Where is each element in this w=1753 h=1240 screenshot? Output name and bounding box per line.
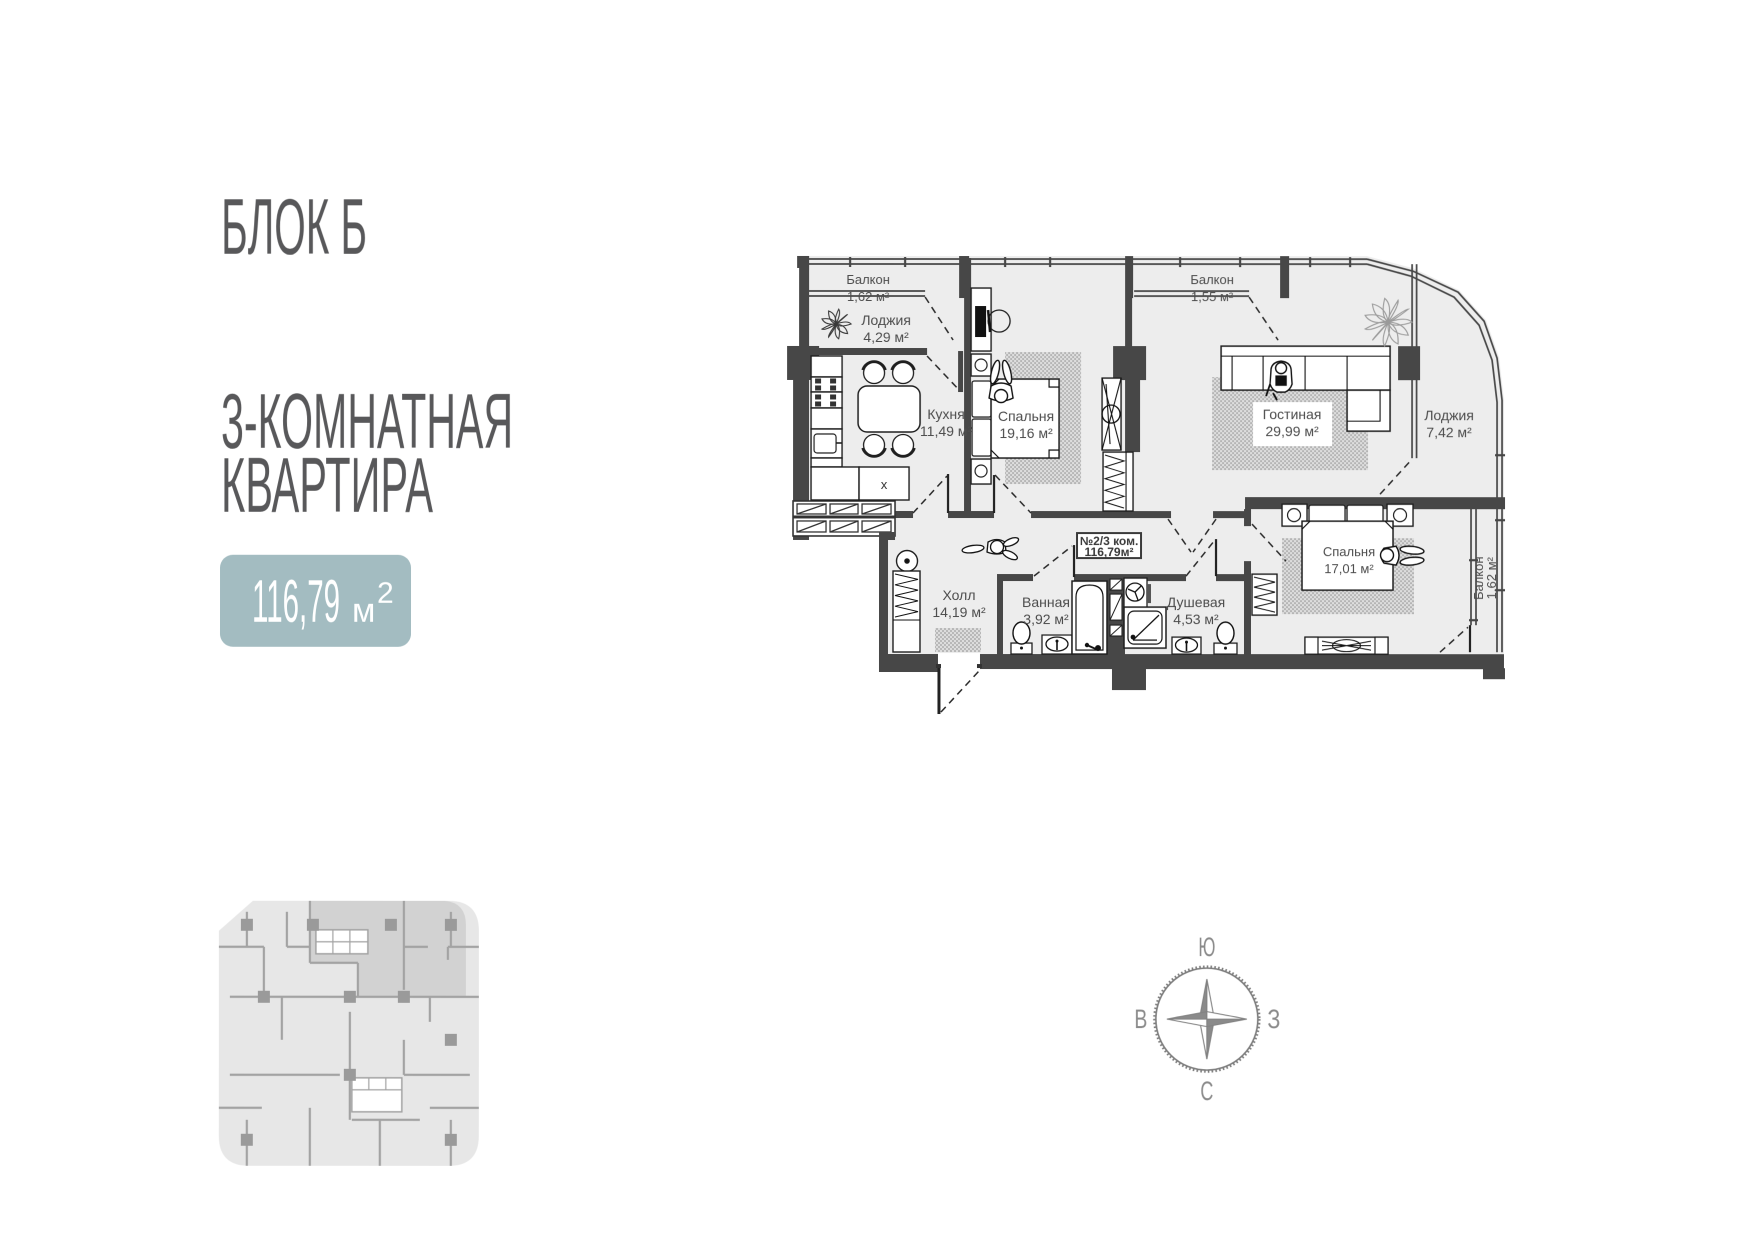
svg-text:1,62 м²: 1,62 м² [847,289,890,304]
svg-text:11,49 м²: 11,49 м² [920,423,973,439]
svg-text:3,92 м²: 3,92 м² [1023,611,1069,627]
svg-text:1,55 м²: 1,55 м² [1191,289,1234,304]
svg-text:17,01 м²: 17,01 м² [1324,561,1374,576]
svg-text:Спальня: Спальня [1323,544,1375,559]
svg-text:29,99 м²: 29,99 м² [1265,423,1319,439]
svg-text:Ю: Ю [1198,932,1215,962]
svg-text:С: С [1200,1076,1213,1106]
svg-text:19,16 м²: 19,16 м² [999,425,1053,441]
svg-text:Холл: Холл [943,587,976,603]
svg-text:Гостиная: Гостиная [1263,406,1322,422]
svg-text:Лоджия: Лоджия [861,312,911,328]
svg-text:Ванная: Ванная [1022,594,1070,610]
svg-text:м: м [352,592,375,630]
svg-text:7,42 м²: 7,42 м² [1426,424,1472,440]
svg-text:Спальня: Спальня [998,408,1054,424]
svg-text:Балкон: Балкон [846,272,890,287]
svg-text:Душевая: Душевая [1167,594,1225,610]
svg-text:14,19 м²: 14,19 м² [932,604,986,620]
svg-text:1,62 м²: 1,62 м² [1484,556,1499,599]
svg-text:В: В [1134,1004,1147,1034]
svg-text:4,53 м²: 4,53 м² [1173,611,1219,627]
svg-text:2: 2 [377,577,394,610]
svg-text:4,29 м²: 4,29 м² [863,329,909,345]
svg-text:116,79: 116,79 [252,568,340,635]
svg-text:З: З [1267,1004,1280,1034]
svg-text:x: x [881,477,888,492]
svg-text:Балкон: Балкон [1190,272,1234,287]
svg-text:Кухня: Кухня [927,406,964,422]
svg-text:116,79м²: 116,79м² [1085,545,1134,559]
svg-text:Лоджия: Лоджия [1424,407,1474,423]
svg-text:БЛОК Б: БЛОК Б [221,182,367,271]
svg-text:КВАРТИРА: КВАРТИРА [221,441,433,529]
